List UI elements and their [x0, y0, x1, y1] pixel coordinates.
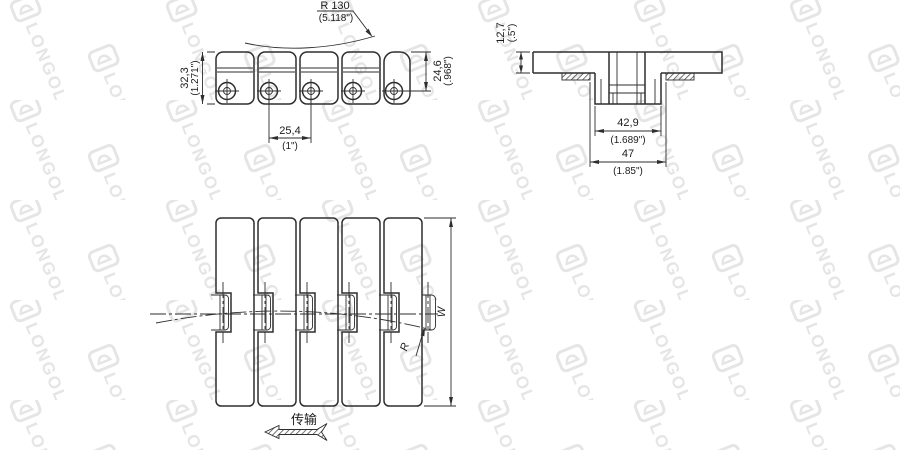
wear-strip	[666, 73, 694, 80]
dim-pin-height-in: (.968")	[443, 56, 454, 86]
dim-inner-width-mm: 42,9	[617, 117, 638, 129]
drawing-page: LONGOLD LONGOLD	[0, 0, 900, 450]
dim-backflex-radius-in: (5.118")	[319, 13, 354, 24]
direction-label: 传输	[291, 412, 317, 427]
dim-height-in: (1.271")	[190, 60, 201, 95]
dim-belt-width-label: W	[436, 305, 448, 317]
dim-pitch-mm: 25,4	[279, 125, 300, 137]
wear-strip	[562, 73, 590, 80]
dim-pitch-in: (1")	[282, 141, 298, 152]
technical-drawing: LONGOLD LONGOLD	[0, 0, 900, 450]
dim-thickness-mm: 12,7	[495, 22, 507, 43]
dim-thickness-in: (.5")	[507, 24, 518, 43]
dim-outer-width-mm: 47	[622, 148, 634, 160]
dim-outer-width-in: (1.85")	[613, 166, 643, 177]
dim-inner-width-in: (1.689")	[610, 135, 645, 146]
dim-backflex-radius-mm: R 130	[320, 0, 349, 12]
